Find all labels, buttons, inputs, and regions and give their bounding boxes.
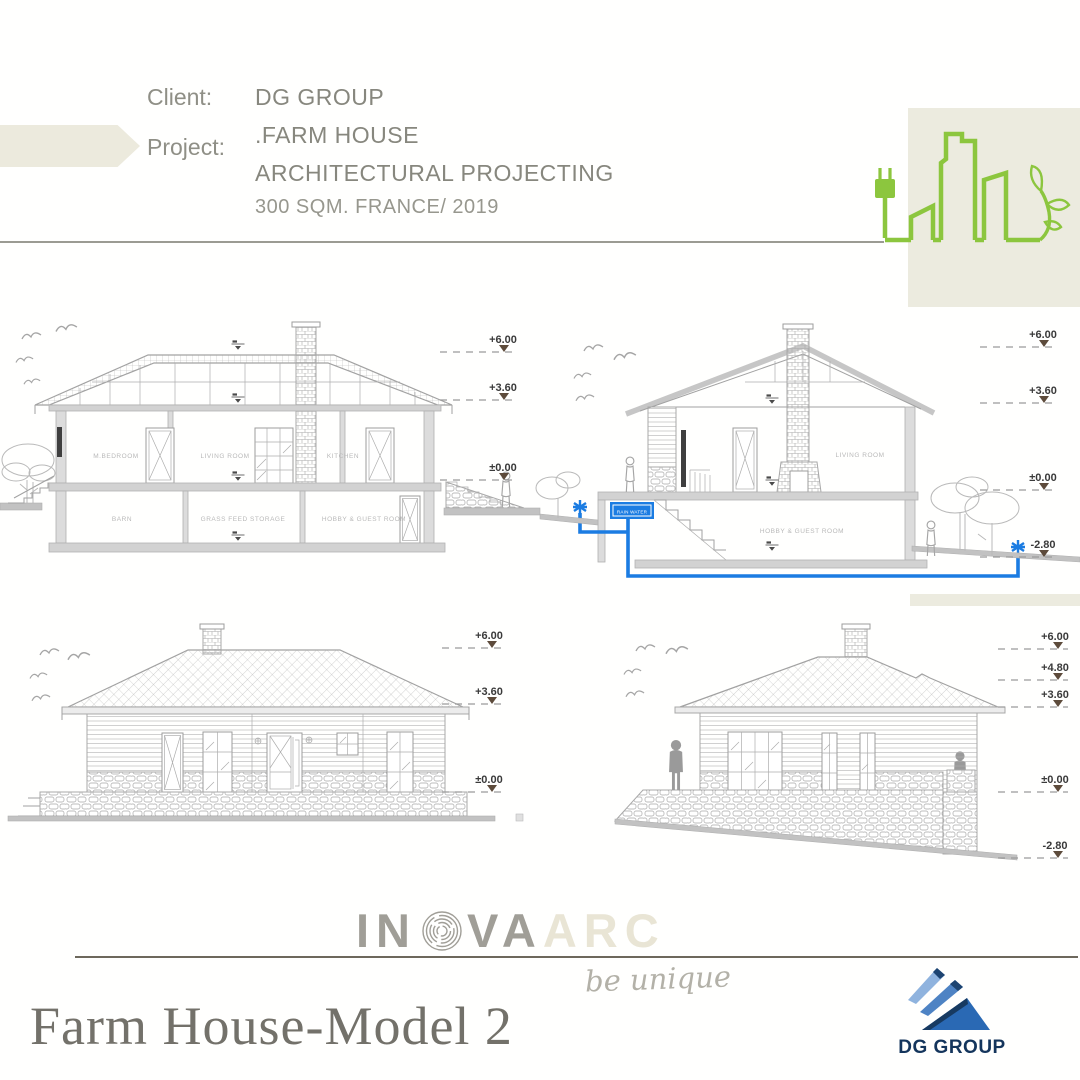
tree-sketch [2,444,55,506]
door [366,428,394,483]
level-markers: +6.00 +4.80 +3.60 ±0.00 -2.80 [998,631,1069,858]
stone-base [40,792,467,816]
room-label: HOBBY & GUEST ROOM [760,528,844,535]
level-label: +6.00 [1041,631,1069,643]
tagline: be unique [584,959,731,998]
presentation-board: Client: DG GROUP Project: .FARM HOUSE AR… [0,0,1080,1080]
room-label: LIVING ROOM [835,452,884,459]
level-label: +4.80 [1041,662,1069,674]
chimney [845,628,867,657]
window [860,733,875,792]
tree-sketch [931,477,1019,556]
door [146,428,174,483]
level-label: +6.00 [1029,329,1057,341]
room-label: KITCHEN [327,453,359,460]
chimney [296,326,316,483]
room-label: BARN [112,516,132,523]
inovaarc-logo: IN VA ARC [356,903,666,958]
sprinkler-icon [1011,540,1025,554]
level-label: -2.80 [1042,840,1067,852]
level-label: -2.80 [1030,539,1055,551]
section-drawing-a: M.BEDROOM LIVING ROOM KITCHEN BARN GRASS… [0,322,540,552]
door [733,428,757,492]
roof-section [626,346,934,414]
level-label: ±0.00 [489,462,516,474]
footer-divider [75,956,1078,958]
level-label: +6.00 [489,334,517,346]
downspout [57,427,62,457]
logo-text-arc: ARC [543,903,666,958]
room-label: GRASS FEED STORAGE [201,516,286,523]
roof [68,650,463,707]
level-label: +3.60 [1041,689,1069,701]
window [728,732,782,792]
level-label: ±0.00 [475,774,502,786]
level-label: ±0.00 [1041,774,1068,786]
window [337,733,358,755]
logo-text-va: VA [467,903,543,958]
level-label: +3.60 [475,686,503,698]
front-elevation-drawing: +6.00 +3.60 ±0.00 [8,624,523,821]
roof [680,657,998,707]
dg-group-logo: DG GROUP [898,968,1005,1058]
stone-stairs [446,482,524,508]
roof-section [35,355,452,405]
level-label: +3.60 [489,382,517,394]
door [162,733,183,792]
level-markers: +6.00 +3.60 ±0.00 -2.80 [980,329,1057,557]
plug-icon [875,179,895,198]
poster-title: Farm House-Model 2 [30,995,513,1057]
room-label: LIVING ROOM [200,453,249,460]
level-label: +3.60 [1029,385,1057,397]
logo-text-in: IN [356,903,417,958]
tank-label: RAIN WATER [617,510,648,515]
room-label: HOBBY & GUEST ROOM [322,516,406,523]
skyline-icon [885,206,941,240]
sprinkler-icon [573,500,587,514]
retaining-wall [615,790,943,852]
room-label: M.BEDROOM [93,453,139,460]
section-drawing-b: LIVING ROOM HOBBY & GUEST ROOM [536,324,1080,576]
fingerprint-icon [421,910,463,952]
porch-pillar [947,770,975,792]
level-label: +6.00 [475,630,503,642]
window [822,733,837,792]
entry-door [267,733,302,792]
window [387,732,413,792]
dg-group-wordmark: DG GROUP [898,1037,1005,1058]
person-figure [626,457,634,492]
chimney [787,328,809,462]
green-city-icon [875,134,1069,240]
glass-wall [255,428,293,483]
window [203,732,232,793]
level-label: ±0.00 [1029,472,1056,484]
side-elevation-drawing: +6.00 +4.80 +3.60 ±0.00 -2.80 [615,624,1069,860]
tree-sketch [536,472,580,518]
person-silhouette [669,740,683,790]
plant-sprout-icon [1040,191,1050,240]
cut-wall [648,407,686,494]
